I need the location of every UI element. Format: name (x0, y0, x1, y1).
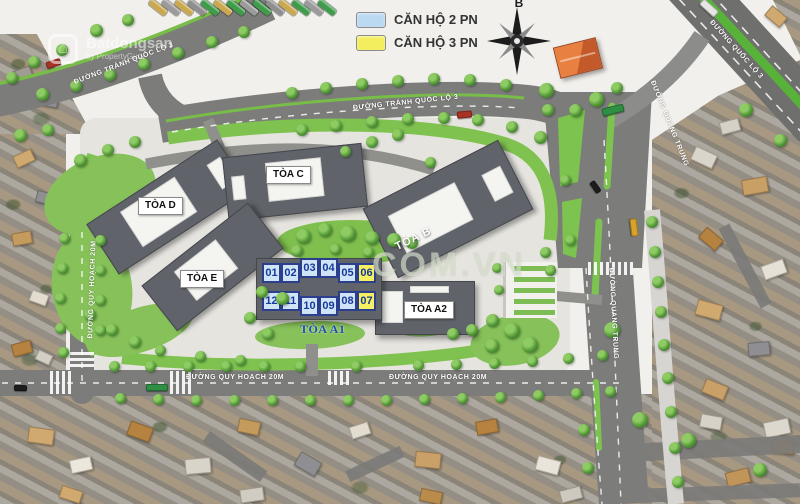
tree (259, 361, 270, 372)
road-label-quy-hoach-bottom-1: ĐƯỜNG QUY HOẠCH 20M (186, 374, 284, 382)
legend-row-3pn: CĂN HỘ 3 PN (356, 31, 478, 54)
unit-09[interactable]: 09 (319, 296, 338, 316)
tree (122, 14, 134, 26)
tree (366, 116, 378, 128)
tree (109, 361, 120, 372)
tree (545, 265, 556, 276)
tree (28, 56, 40, 68)
tree (221, 361, 232, 372)
compass-icon: B (476, 0, 558, 82)
unit-01[interactable]: 01 (262, 263, 281, 283)
site-entrance (556, 296, 602, 300)
tree (533, 390, 544, 401)
unit-02[interactable]: 02 (281, 263, 300, 283)
unit-08[interactable]: 08 (338, 291, 357, 311)
tree (365, 231, 379, 245)
unit-07[interactable]: 07 (357, 291, 376, 311)
tree (605, 386, 616, 397)
unit-10[interactable]: 10 (300, 296, 319, 316)
unit-03[interactable]: 03 (300, 258, 319, 278)
tree (534, 131, 547, 144)
roof-section (231, 175, 247, 201)
tree (563, 353, 574, 364)
building-c-label: TÒA C (266, 166, 311, 184)
tree (14, 129, 27, 142)
car (457, 110, 473, 118)
tree (320, 82, 332, 94)
tree (560, 175, 571, 186)
tree (55, 323, 66, 334)
tree (191, 395, 202, 406)
tree (318, 223, 332, 237)
tree (291, 245, 303, 257)
tree (305, 395, 316, 406)
tree (753, 463, 767, 477)
tree (506, 121, 518, 133)
tree (6, 72, 18, 84)
tree (276, 292, 289, 305)
legend-label-3pn: CĂN HỘ 3 PN (394, 35, 478, 50)
tree (486, 314, 499, 327)
bus (146, 384, 168, 391)
unit-05[interactable]: 05 (338, 263, 357, 283)
tree (296, 124, 308, 136)
tree (392, 129, 404, 141)
car (14, 385, 27, 391)
tree (649, 246, 661, 258)
tree (652, 276, 664, 288)
tree (115, 393, 126, 404)
tree (129, 136, 141, 148)
tree (340, 226, 356, 242)
tree (565, 235, 576, 246)
tree (256, 286, 268, 298)
median-island (595, 222, 599, 296)
tree (522, 337, 538, 353)
tree (145, 361, 156, 372)
tree (206, 36, 218, 48)
tree (262, 328, 274, 340)
legend-row-2pn: CĂN HỘ 2 PN (356, 8, 478, 31)
tree (392, 75, 404, 87)
tree (681, 433, 696, 448)
tree (589, 92, 604, 107)
tree (402, 113, 414, 125)
tree (153, 394, 164, 405)
tree (55, 293, 66, 304)
tree (244, 312, 256, 324)
legend: CĂN HỘ 2 PN CĂN HỘ 3 PN (356, 8, 478, 54)
building-d-label: TÒA D (138, 197, 183, 215)
tree (466, 324, 478, 336)
tree (59, 233, 70, 244)
tree (611, 82, 623, 94)
tree (129, 336, 141, 348)
compass-north-label: B (515, 0, 524, 10)
brand-watermark-text: Batdongsan (86, 36, 173, 53)
tree (447, 328, 459, 340)
brand-watermark: ⌂ Batdongsan by PropertyGuru (48, 34, 173, 64)
tree (504, 323, 520, 339)
roof-section (382, 291, 404, 322)
tree (42, 124, 54, 136)
tree (582, 462, 594, 474)
tree (527, 356, 538, 367)
tree (296, 229, 311, 244)
tree (267, 395, 278, 406)
tree (774, 134, 787, 147)
roof-section (481, 165, 514, 202)
brand-watermark-subtext: by PropertyGuru (86, 53, 173, 62)
tree (366, 136, 378, 148)
tree (58, 347, 69, 358)
tree (413, 360, 424, 371)
legend-swatch-2pn (356, 12, 386, 28)
tree (489, 358, 500, 369)
tree (330, 120, 342, 132)
tree (571, 388, 582, 399)
tree (238, 26, 250, 38)
legend-swatch-3pn (356, 35, 386, 51)
tree (102, 144, 114, 156)
tree (457, 393, 468, 404)
center-watermark: COM.VN (372, 246, 526, 285)
tree (597, 350, 608, 361)
tree (464, 74, 476, 86)
roof-section (410, 286, 449, 293)
tree (662, 372, 674, 384)
tree (95, 295, 106, 306)
median-island (607, 106, 612, 186)
tree (330, 244, 341, 255)
tree (495, 392, 506, 403)
tree (295, 361, 306, 372)
tree (540, 247, 551, 258)
tree (739, 103, 753, 117)
tree (655, 306, 667, 318)
tree (428, 73, 440, 85)
tree (57, 263, 68, 274)
tree (578, 424, 590, 436)
building-a2-label: TÒA A2 (404, 301, 454, 319)
tree (343, 395, 354, 406)
tree (665, 406, 677, 418)
tree (419, 394, 430, 405)
tree (569, 104, 582, 117)
building-e-label: TÒA E (180, 270, 224, 288)
tree (472, 114, 484, 126)
tree (451, 359, 462, 370)
tree (351, 361, 362, 372)
tree (106, 324, 118, 336)
tree (229, 395, 240, 406)
road-label-quy-hoach-bottom-2: ĐƯỜNG QUY HOẠCH 20M (389, 374, 487, 382)
tree (438, 112, 450, 124)
tree (539, 83, 554, 98)
tree (485, 339, 499, 353)
tree (183, 361, 194, 372)
tree (632, 412, 648, 428)
brand-logo-icon: ⌂ (48, 34, 78, 64)
tree (672, 476, 684, 488)
legend-label-2pn: CĂN HỘ 2 PN (394, 12, 478, 27)
tree (658, 339, 670, 351)
tree (340, 146, 351, 157)
tree (381, 395, 392, 406)
tree (155, 345, 166, 356)
tree (235, 355, 246, 366)
tree (95, 325, 106, 336)
tree (172, 47, 184, 59)
tree (74, 154, 87, 167)
tree (494, 285, 504, 295)
tree (646, 216, 658, 228)
tree (195, 351, 206, 362)
site-plan-canvas: 01 02 03 04 05 06 12 11 10 09 08 07 TÒA … (0, 0, 800, 504)
building-a1-label: TÒA A1 (300, 322, 345, 337)
tree (542, 104, 554, 116)
tree (669, 442, 681, 454)
tree (356, 78, 368, 90)
tree (425, 157, 436, 168)
unit-04[interactable]: 04 (319, 258, 338, 278)
tree (36, 88, 49, 101)
tree (286, 87, 298, 99)
